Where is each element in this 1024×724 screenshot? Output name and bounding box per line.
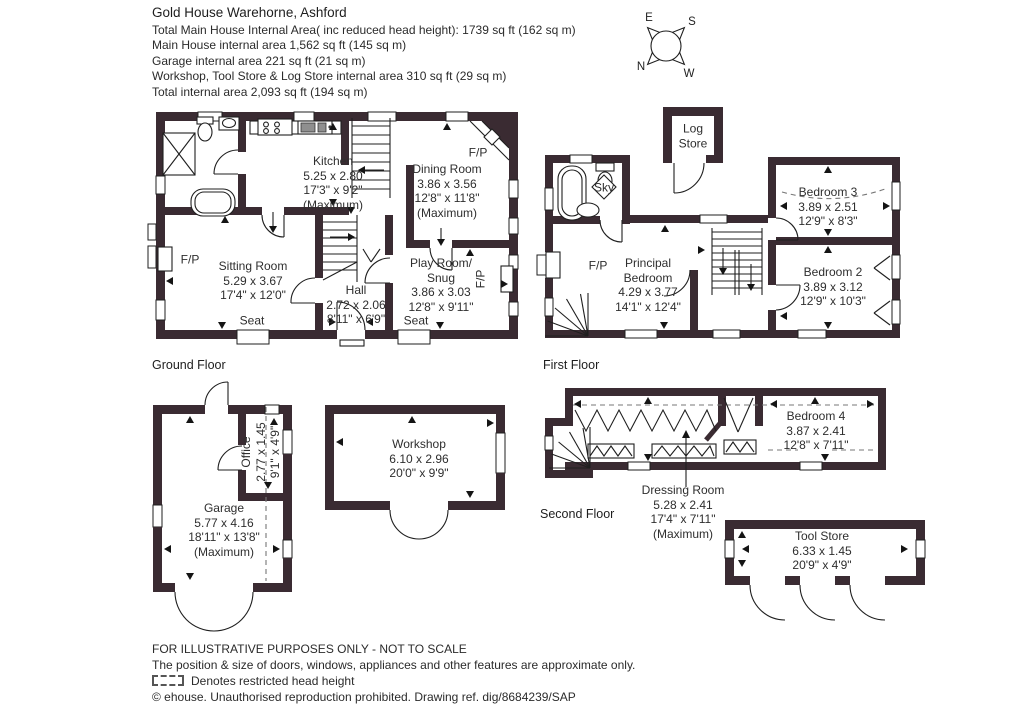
- room-name: Bedroom 4: [784, 409, 849, 424]
- room-imperial: 17'4" x 12'0": [219, 288, 288, 303]
- room-label-workshop: Workshop 6.10 x 2.96 20'0" x 9'9": [389, 437, 448, 481]
- area-line: Main House internal area 1,562 sq ft (14…: [152, 38, 576, 53]
- basin-icon: [577, 203, 599, 217]
- room-label-dressing-room: Dressing Room 5.28 x 2.41 17'4" x 7'11" …: [642, 483, 725, 542]
- seat-label: Seat: [240, 314, 265, 329]
- stairs: [323, 215, 357, 282]
- skylight-label: Sky: [594, 181, 614, 196]
- room-metric: 3.89 x 3.12: [800, 280, 866, 295]
- room-name: Dining Room: [412, 162, 481, 177]
- room-metric: 3.89 x 2.51: [798, 200, 857, 215]
- room-imperial: 9'1" x 4'9": [268, 422, 283, 481]
- room-label-office: Office 2.77 x 1.45 9'1" x 4'9": [239, 422, 283, 481]
- room-imperial: 12'8" x 7'11": [784, 438, 849, 453]
- hob-icon: [258, 119, 292, 135]
- room-name: Hall: [326, 283, 385, 298]
- room-label-principal-bedroom: Principal Bedroom 4.29 x 3.77 14'1" x 12…: [615, 256, 681, 315]
- room-imperial: 20'0" x 9'9": [389, 466, 448, 481]
- sink-icon: [298, 121, 332, 134]
- room-note: (Maximum): [412, 206, 481, 221]
- room-metric: 5.77 x 4.16: [188, 515, 260, 530]
- first-floor-label: First Floor: [543, 358, 599, 372]
- second-floor-label: Second Floor: [540, 507, 614, 521]
- room-name: Bedroom 2: [800, 265, 866, 280]
- room-name: Workshop: [389, 437, 448, 452]
- room-label-dining-room: Dining Room 3.86 x 3.56 12'8" x 11'8" (M…: [412, 162, 481, 221]
- room-label-tool-store: Tool Store 6.33 x 1.45 20'9" x 4'9": [792, 529, 851, 573]
- bathtub-icon: [191, 189, 235, 216]
- fireplace-icon: [546, 252, 560, 278]
- room-label-bedroom-3: Bedroom 3 3.89 x 2.51 12'9" x 8'3": [798, 185, 857, 229]
- room-note: (Maximum): [303, 198, 363, 213]
- fireplace-label: F/P: [589, 259, 608, 274]
- footer-accuracy-note: The position & size of doors, windows, a…: [152, 657, 635, 673]
- toilet-icon: [197, 117, 213, 141]
- room-label-bedroom-4: Bedroom 4 3.87 x 2.41 12'8" x 7'11": [784, 409, 849, 453]
- area-line: Garage internal area 221 sq ft (21 sq m): [152, 54, 576, 69]
- room-name: Sitting Room: [219, 259, 288, 274]
- room-imperial: 17'4" x 7'11": [642, 512, 725, 527]
- room-label-kitchen: Kitchen 5.25 x 2.80 17'3" x 9'2" (Maximu…: [303, 154, 363, 213]
- seat-bay: [237, 330, 269, 344]
- room-note: (Maximum): [188, 545, 260, 560]
- room-label-garage: Garage 5.77 x 4.16 18'11" x 13'8" (Maxim…: [188, 501, 260, 560]
- room-name: Store: [679, 136, 708, 151]
- room-metric: 3.87 x 2.41: [784, 424, 849, 439]
- room-name: Principal: [615, 256, 681, 271]
- room-imperial: 12'9" x 10'3": [800, 294, 866, 309]
- footer-key-label: Denotes restricted head height: [191, 674, 354, 688]
- compass-north-label: N: [637, 61, 645, 73]
- room-metric: 2.72 x 2.06: [326, 298, 385, 313]
- room-metric: 3.86 x 3.03: [409, 285, 474, 300]
- room-imperial: 12'9" x 8'3": [798, 214, 857, 229]
- room-name: Kitchen: [303, 154, 363, 169]
- room-metric: 5.29 x 3.67: [219, 274, 288, 289]
- ground-floor-label: Ground Floor: [152, 358, 226, 372]
- seat-bay: [398, 330, 430, 344]
- shower-icon: [163, 133, 195, 175]
- fireplace-icon: [501, 266, 513, 292]
- area-line: Total Main House Internal Area( inc redu…: [152, 23, 576, 38]
- basin-icon: [219, 117, 239, 130]
- floorplan-page: Gold House Warehorne, Ashford Total Main…: [0, 0, 1024, 724]
- room-name: Tool Store: [792, 529, 851, 544]
- compass-rose-icon: [648, 28, 685, 65]
- fireplace-label: F/P: [181, 253, 200, 268]
- fireplace-icon: [158, 247, 172, 271]
- footer-disclaimer: FOR ILLUSTRATIVE PURPOSES ONLY - NOT TO …: [152, 641, 635, 657]
- fireplace-label: F/P: [474, 270, 489, 289]
- room-name: Dressing Room: [642, 483, 725, 498]
- room-metric: 2.77 x 1.45: [254, 422, 269, 481]
- room-label-play-room: Play Room/ Snug 3.86 x 3.03 12'8" x 9'11…: [409, 256, 474, 315]
- area-line: Workshop, Tool Store & Log Store interna…: [152, 69, 576, 84]
- area-line: Total internal area 2,093 sq ft (194 sq …: [152, 85, 576, 100]
- compass-south-label: S: [688, 16, 696, 28]
- room-name: Log: [679, 121, 708, 136]
- plan-title: Gold House Warehorne, Ashford: [152, 5, 576, 20]
- room-name: Play Room/: [409, 256, 474, 271]
- fireplace-label: F/P: [469, 146, 488, 161]
- room-note: (Maximum): [642, 527, 725, 542]
- compass-west-label: W: [684, 68, 695, 80]
- room-metric: 5.25 x 2.80: [303, 168, 363, 183]
- room-imperial: 8'11" x 6'9": [326, 312, 385, 327]
- room-imperial: 18'11" x 13'8": [188, 530, 260, 545]
- room-name: Bedroom 3: [798, 185, 857, 200]
- footer-key-row: Denotes restricted head height: [152, 673, 635, 689]
- room-imperial: 20'9" x 4'9": [792, 558, 851, 573]
- room-metric: 4.29 x 3.77: [615, 285, 681, 300]
- room-imperial: 12'8" x 11'8": [412, 191, 481, 206]
- room-imperial: 12'8" x 9'11": [409, 300, 474, 315]
- winder-stairs: [549, 427, 590, 468]
- room-metric: 6.33 x 1.45: [792, 544, 851, 559]
- room-name: Office: [239, 422, 254, 481]
- room-label-sitting-room: Sitting Room 5.29 x 3.67 17'4" x 12'0": [219, 259, 288, 303]
- room-metric: 6.10 x 2.96: [389, 452, 448, 467]
- room-name: Bedroom: [615, 270, 681, 285]
- footer-copyright: © ehouse. Unauthorised reproduction proh…: [152, 689, 635, 705]
- room-metric: 3.86 x 3.56: [412, 176, 481, 191]
- seat-label: Seat: [404, 314, 429, 329]
- room-metric: 5.28 x 2.41: [642, 497, 725, 512]
- room-imperial: 14'1" x 12'4": [615, 300, 681, 315]
- room-imperial: 17'3" x 9'2": [303, 183, 363, 198]
- room-label-log-store: Log Store: [679, 121, 708, 150]
- header: Gold House Warehorne, Ashford Total Main…: [152, 5, 576, 100]
- room-label-hall: Hall 2.72 x 2.06 8'11" x 6'9": [326, 283, 385, 327]
- stairs: [712, 228, 762, 295]
- compass-east-label: E: [645, 12, 653, 24]
- room-label-bedroom-2: Bedroom 2 3.89 x 3.12 12'9" x 10'3": [800, 265, 866, 309]
- restricted-head-height-key-icon: [152, 675, 184, 686]
- footer: FOR ILLUSTRATIVE PURPOSES ONLY - NOT TO …: [152, 641, 635, 705]
- room-name: Garage: [188, 501, 260, 516]
- room-name: Snug: [409, 270, 474, 285]
